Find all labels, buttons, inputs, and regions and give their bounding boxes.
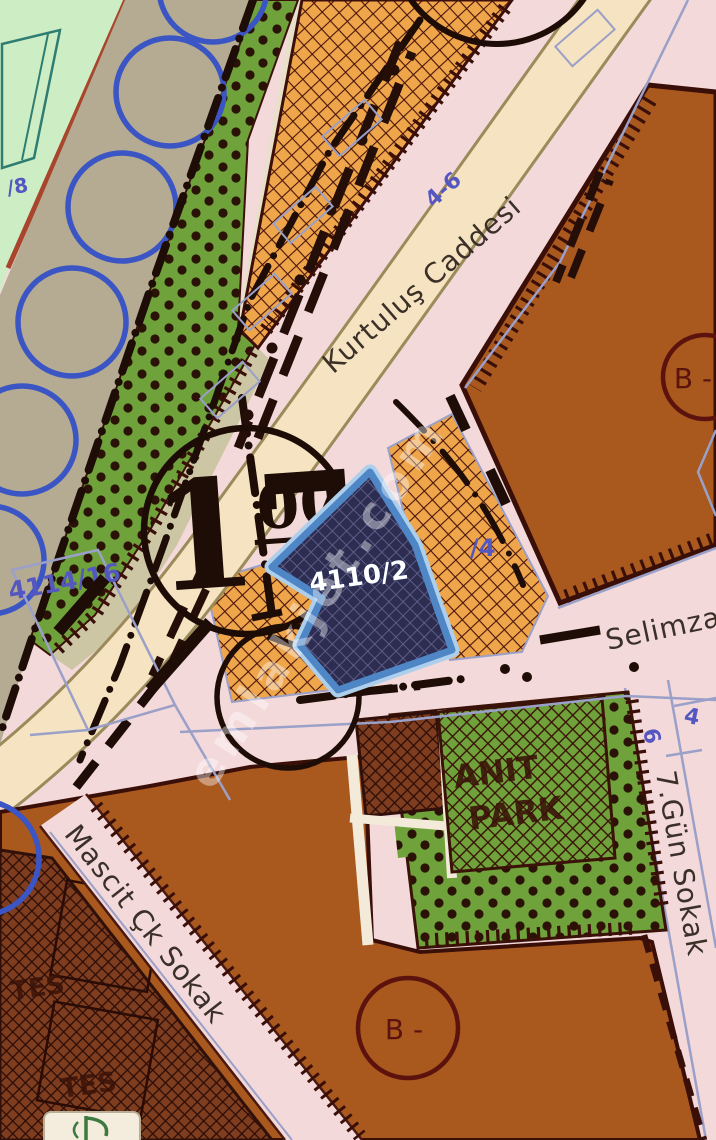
parcel-label-4: /4 xyxy=(470,534,495,562)
tes-small-block xyxy=(356,712,446,816)
zoning-map: 17 00 Kurtuluş Caddesi Selimzade Mascit … xyxy=(0,0,716,1140)
zone-b-upper-label: B - xyxy=(674,362,712,395)
parcel-label-8: /8 xyxy=(5,173,30,200)
watermark-logo xyxy=(44,1112,140,1140)
zoning-map-screenshot: 17 00 Kurtuluş Caddesi Selimzade Mascit … xyxy=(0,0,716,1140)
zone-b-lower-label: B - xyxy=(385,1013,423,1046)
